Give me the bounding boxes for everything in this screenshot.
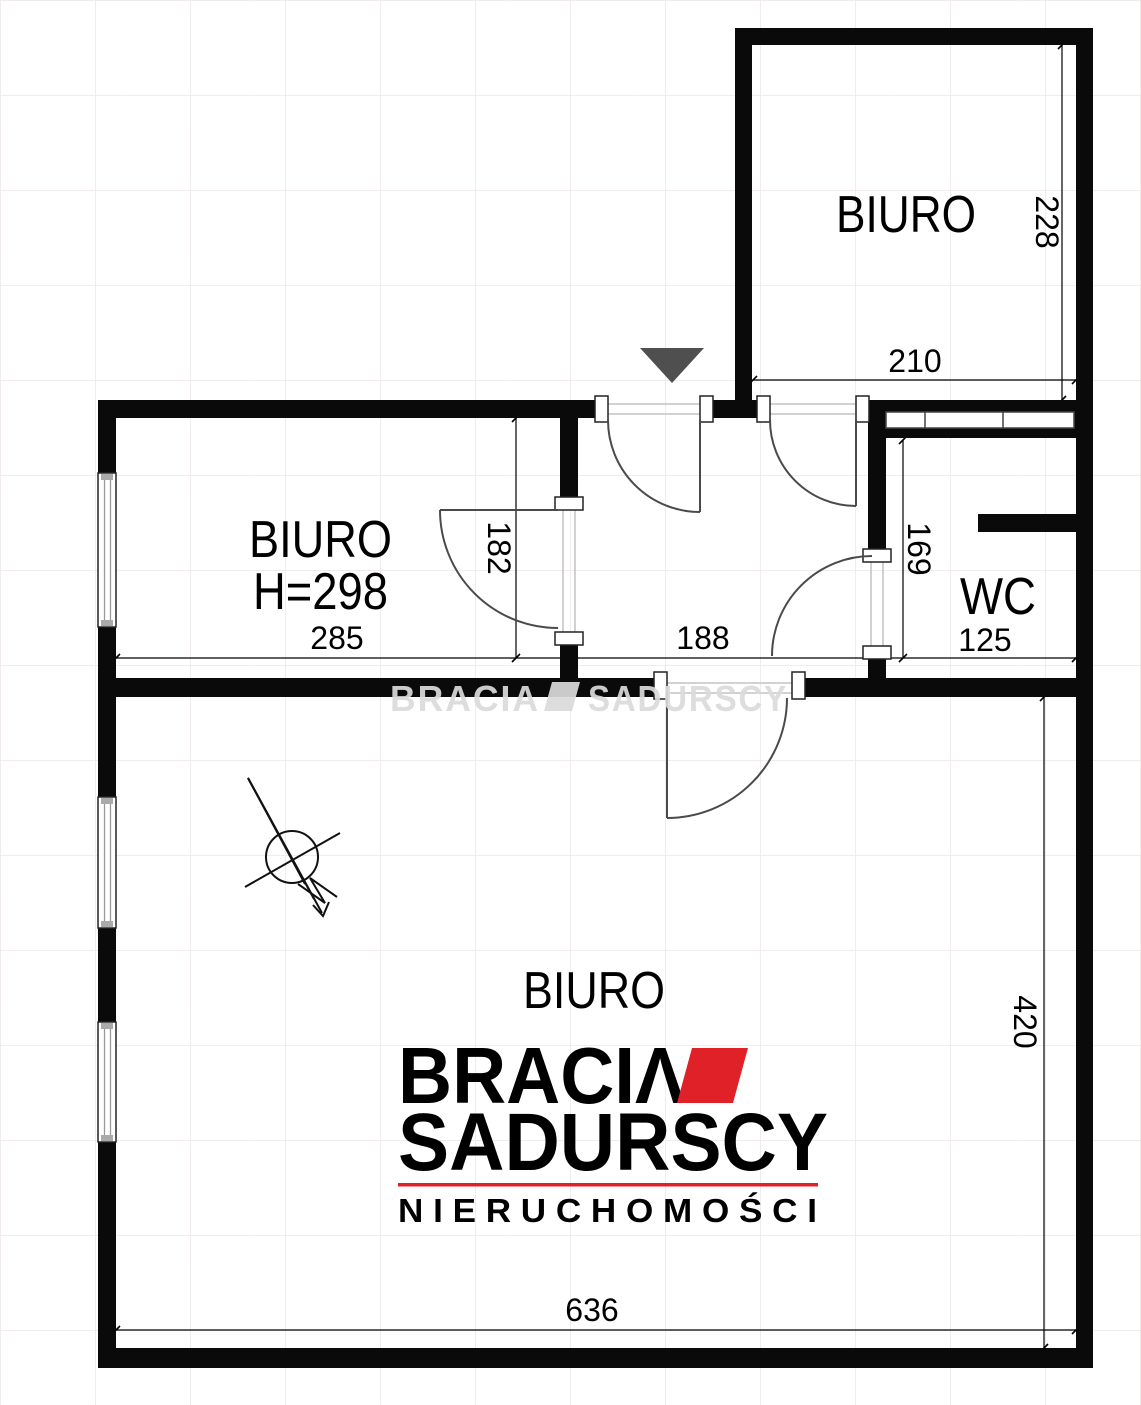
dim-label-182: 182 — [481, 521, 517, 574]
room-label-office-left-height: H=298 — [253, 563, 388, 621]
wall — [792, 678, 1093, 697]
floorplan-drawing: BRACIA SADURSCY BIURO BIURO H=298 WC BIU… — [0, 0, 1141, 1405]
door-arc-entrance — [608, 420, 700, 512]
windows — [98, 473, 116, 1142]
door-frame — [770, 404, 856, 414]
dim-label-125: 125 — [958, 622, 1011, 658]
dim-label-636: 636 — [565, 1292, 618, 1328]
room-label-wc: WC — [960, 568, 1036, 626]
window — [98, 1022, 116, 1142]
wall — [98, 400, 608, 418]
wall — [98, 1348, 1093, 1368]
door-frame — [563, 510, 575, 632]
agency-logo: BRACIΛ SADURSCY N I E R U C H O M O Ś C … — [398, 1031, 828, 1229]
door-jamb — [863, 646, 891, 659]
door-jamb — [856, 396, 869, 422]
wc-wall-inset — [886, 412, 1074, 428]
door-jamb — [700, 396, 713, 422]
north-arrow-icon — [245, 778, 340, 916]
wall — [98, 1142, 116, 1352]
logo-divider — [398, 1183, 818, 1187]
room-label-office-top: BIURO — [836, 186, 976, 244]
dim-label-169: 169 — [901, 522, 937, 575]
dim-label-285: 285 — [310, 620, 363, 656]
floorplan-canvas: BRACIA SADURSCY BIURO BIURO H=298 WC BIU… — [0, 0, 1141, 1405]
dim-label-228: 228 — [1029, 195, 1065, 248]
logo-mark-icon — [677, 1048, 748, 1103]
logo-line3: N I E R U C H O M O Ś C I — [398, 1192, 817, 1229]
wall — [868, 418, 886, 549]
wall — [978, 514, 1076, 532]
door-jamb — [595, 396, 608, 422]
room-label-office-left: BIURO — [249, 511, 392, 569]
dim-label-188: 188 — [676, 620, 729, 656]
wall — [868, 659, 886, 678]
wall — [735, 28, 1093, 45]
door-frame — [608, 404, 700, 414]
wall-inset-box — [886, 412, 1074, 428]
wall — [98, 678, 667, 697]
wall — [735, 45, 752, 418]
dim-label-420: 420 — [1007, 995, 1043, 1048]
wall — [98, 627, 116, 797]
door-jamb — [555, 497, 583, 510]
window — [98, 473, 116, 627]
door-swings — [440, 420, 872, 818]
watermark-text-2: SADURSCY — [588, 678, 788, 719]
door-jamb — [792, 672, 805, 699]
dim-label-210: 210 — [888, 343, 941, 379]
room-label-office-main: BIURO — [523, 962, 665, 1020]
watermark-text-1: BRACIA — [390, 678, 540, 719]
door-arc-wc — [772, 556, 872, 656]
door-jamb — [757, 396, 770, 422]
logo-line2: SADURSCY — [398, 1097, 828, 1188]
wall — [560, 645, 578, 678]
wall — [560, 418, 578, 497]
entrance-arrow-icon — [640, 348, 704, 383]
door-jamb — [555, 632, 583, 645]
watermark: BRACIA SADURSCY — [390, 678, 788, 719]
window — [98, 797, 116, 928]
wall — [98, 928, 116, 1022]
door-frame — [871, 562, 883, 646]
door-arc-office-top — [770, 420, 856, 506]
